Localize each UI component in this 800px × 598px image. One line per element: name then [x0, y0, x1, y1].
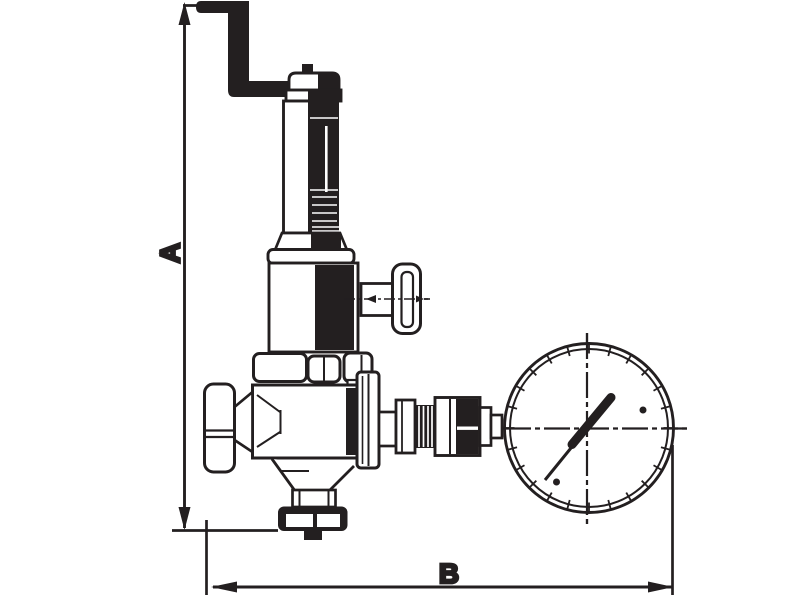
- svg-text:B: B: [439, 558, 459, 589]
- svg-text:A: A: [155, 243, 186, 263]
